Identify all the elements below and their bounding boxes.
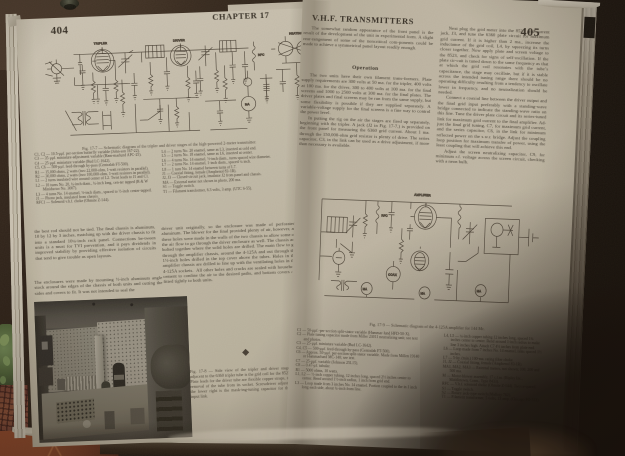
svg-text:AMPLIFIER: AMPLIFIER — [414, 193, 431, 198]
svg-text:COAX: COAX — [388, 272, 397, 277]
svg-text:MA: MA — [245, 102, 250, 106]
svg-text:MA: MA — [477, 289, 482, 293]
svg-text:TRIPLER: TRIPLER — [94, 41, 108, 46]
svg-text:DRIVER: DRIVER — [173, 38, 185, 42]
svg-text:MA: MA — [420, 291, 425, 295]
svg-text:MA: MA — [363, 287, 368, 291]
svg-text:RFC: RFC — [381, 213, 388, 217]
svg-text:RFC: RFC — [258, 53, 265, 57]
